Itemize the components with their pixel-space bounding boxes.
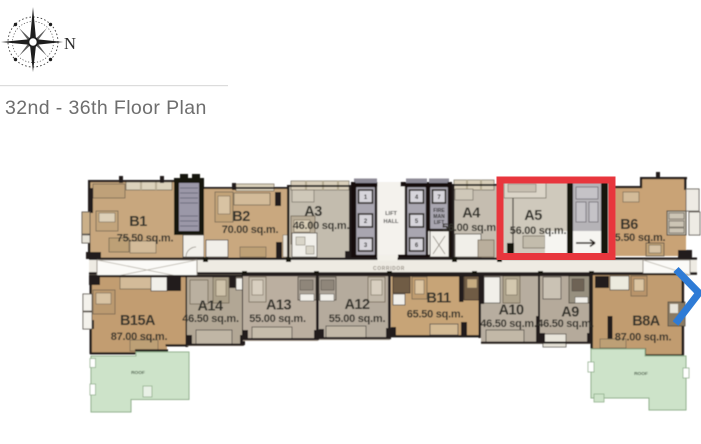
svg-text:A13: A13: [266, 298, 292, 314]
svg-text:46.00 sq.m.: 46.00 sq.m.: [293, 220, 350, 232]
svg-text:46.50 sq.m.: 46.50 sq.m.: [480, 318, 537, 330]
svg-text:A10: A10: [498, 303, 524, 319]
svg-text:70.00 sq.m.: 70.00 sq.m.: [222, 224, 279, 236]
svg-text:56.00 sq.m.: 56.00 sq.m.: [510, 225, 567, 237]
svg-text:B15A: B15A: [120, 313, 156, 329]
svg-text:CORRIDOR: CORRIDOR: [373, 266, 405, 272]
svg-text:55.00 sq.m.: 55.00 sq.m.: [249, 313, 306, 325]
svg-text:87.00 sq.m.: 87.00 sq.m.: [111, 331, 168, 343]
svg-text:A5: A5: [524, 208, 542, 224]
svg-text:87.00 sq.m.: 87.00 sq.m.: [615, 332, 672, 344]
svg-text:5.50 sq.m.: 5.50 sq.m.: [615, 232, 666, 244]
svg-text:B2: B2: [232, 209, 250, 225]
svg-text:32nd - 36th Floor Plan: 32nd - 36th Floor Plan: [5, 97, 207, 119]
svg-text:46.50 sq.m.: 46.50 sq.m.: [537, 318, 594, 330]
svg-text:A4: A4: [462, 206, 480, 222]
svg-text:HALL: HALL: [384, 219, 399, 225]
svg-text:56.00 sq.m: 56.00 sq.m: [442, 222, 496, 234]
svg-text:ROOF: ROOF: [131, 370, 145, 376]
svg-text:A3: A3: [304, 204, 322, 220]
svg-text:B11: B11: [426, 291, 451, 307]
svg-text:LIFT: LIFT: [385, 211, 397, 217]
svg-text:ROOF: ROOF: [634, 371, 648, 377]
svg-text:A12: A12: [344, 297, 370, 313]
svg-text:N: N: [64, 34, 76, 53]
svg-text:75.50 sq.m.: 75.50 sq.m.: [117, 233, 174, 245]
svg-text:55.00 sq.m.: 55.00 sq.m.: [329, 313, 386, 325]
svg-text:65.50 sq.m.: 65.50 sq.m.: [407, 309, 464, 321]
svg-text:B8A: B8A: [632, 314, 661, 330]
svg-text:46.50 sq.m.: 46.50 sq.m.: [182, 313, 239, 325]
svg-text:B1: B1: [129, 214, 147, 230]
svg-text:B6: B6: [620, 217, 638, 233]
